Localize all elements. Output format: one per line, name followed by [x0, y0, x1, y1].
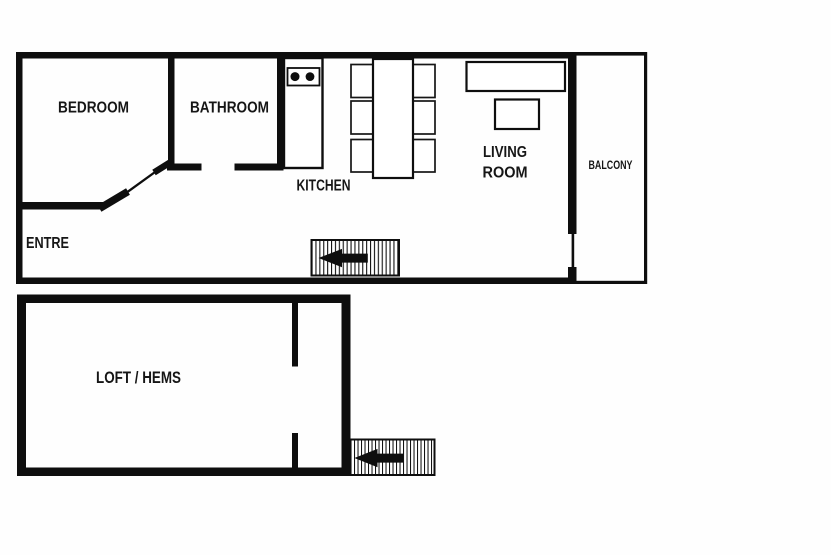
- svg-text:BATHROOM: BATHROOM: [190, 100, 269, 117]
- svg-text:LOFT / HEMS: LOFT / HEMS: [96, 369, 181, 387]
- svg-text:BEDROOM: BEDROOM: [58, 100, 129, 117]
- svg-text:ENTRE: ENTRE: [26, 235, 69, 252]
- svg-text:KITCHEN: KITCHEN: [297, 178, 351, 195]
- svg-text:ROOM: ROOM: [483, 165, 528, 182]
- svg-text:BALCONY: BALCONY: [589, 158, 633, 172]
- svg-text:LIVING: LIVING: [483, 144, 527, 161]
